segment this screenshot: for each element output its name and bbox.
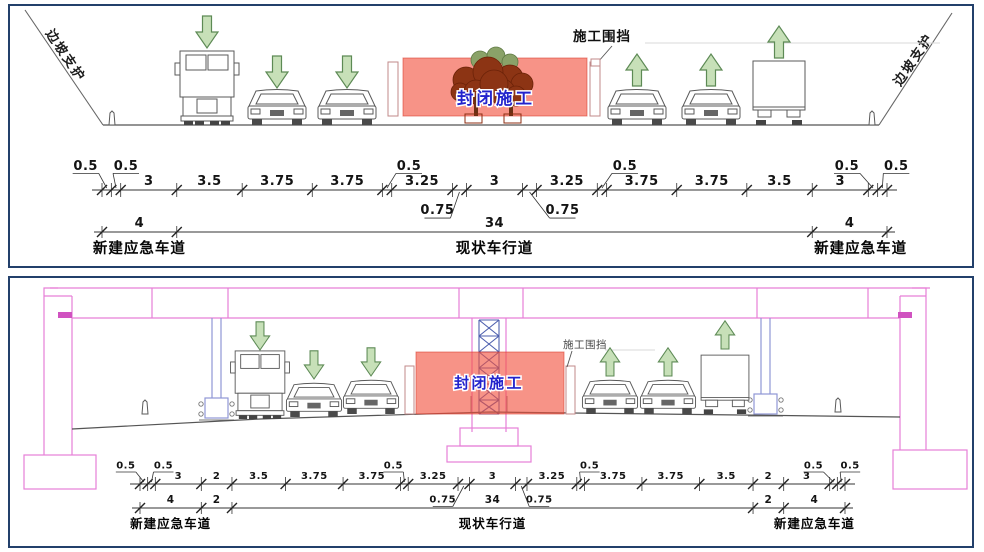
dim-label: 3.5 [717, 471, 736, 482]
fence-callout-label: 施工围挡 [563, 338, 607, 351]
bottom-cross-section-panel: 封闭施工 施工围挡 0.50.5323.53.753.750.53.250.75… [8, 276, 974, 548]
slope-support-label-left: 边坡支护 [41, 26, 88, 86]
construction-fence-panel [590, 62, 600, 116]
dim-callout-label: 0.5 [154, 461, 173, 472]
green-down-arrow-icon [266, 56, 288, 88]
closed-construction-label: 封闭施工 [454, 374, 524, 392]
lane-label: 新建应急车道 [93, 239, 186, 257]
dim-label: 3.75 [695, 174, 729, 189]
dim-callout-label: 0.75 [420, 203, 454, 218]
dim-callout-label: 0.5 [580, 461, 599, 472]
delineator-post-icon [869, 111, 875, 125]
dim-total-label: 2 [764, 494, 772, 506]
dim-callout-label: 0.5 [884, 159, 909, 174]
fence-callout-target [591, 59, 600, 66]
closed-construction-label: 封闭施工 [457, 88, 535, 108]
delineator-post-icon [835, 398, 841, 412]
dim-callout-label: 0.5 [397, 159, 422, 174]
dim-label: 3.5 [197, 174, 222, 189]
dim-total-label: 4 [167, 494, 175, 506]
dim-label: 3.75 [260, 174, 294, 189]
green-up-arrow-icon [658, 348, 677, 376]
green-down-arrow-icon [250, 322, 269, 350]
dim-callout-label: 0.5 [384, 461, 403, 472]
dim-label: 3.25 [550, 174, 584, 189]
dim-label: 3 [489, 471, 496, 482]
dim-label: 3 [144, 174, 154, 189]
construction-cross-section-figure: 边坡支护 边坡支护 封闭施工 施工围挡 0.50.533.53.753.750.… [0, 0, 984, 552]
dim-callout-label: 0.5 [114, 159, 139, 174]
deck-joint-lines [152, 288, 868, 318]
green-down-arrow-icon [361, 348, 380, 376]
dim-label: 3.75 [657, 471, 684, 482]
left-pier [199, 318, 234, 420]
lane-label: 现状车行道 [459, 516, 527, 531]
car-front-icon [682, 90, 740, 126]
lane-label: 新建应急车道 [130, 516, 211, 531]
truck-rear-icon [753, 61, 805, 125]
car-front-icon [582, 380, 637, 414]
green-up-arrow-icon [600, 348, 619, 376]
car-front-icon [248, 90, 306, 126]
dim-label: 3.25 [420, 471, 447, 482]
dim-label: 3.75 [625, 174, 659, 189]
green-up-arrow-icon [626, 54, 648, 86]
construction-fence-panel [388, 62, 398, 116]
dim-callout-label: 0.75 [526, 495, 553, 506]
car-front-icon [608, 90, 666, 126]
car-front-icon [286, 383, 341, 417]
construction-fence-panel [566, 366, 575, 414]
green-down-arrow-icon [304, 351, 323, 379]
dim-callout-label: 0.75 [429, 495, 456, 506]
dim-callout-label: 0.5 [841, 461, 860, 472]
dim-label: 3.25 [405, 174, 439, 189]
right-abutment [893, 288, 967, 489]
lane-label: 现状车行道 [456, 239, 534, 257]
dim-total-label: 4 [845, 216, 855, 231]
dim-callout-label: 0.75 [546, 203, 580, 218]
dim-label: 3 [175, 471, 182, 482]
truck-front-icon [231, 351, 290, 419]
dim-label: 3.75 [301, 471, 328, 482]
lane-label: 新建应急车道 [774, 516, 855, 531]
dim-callout-label: 0.5 [73, 159, 98, 174]
bottom-dimension-lines: 0.50.5323.53.753.750.53.250.7530.753.250… [116, 461, 860, 532]
dim-callout-label: 0.5 [116, 461, 135, 472]
construction-fence-panel [405, 366, 414, 414]
top-cross-section-panel: 边坡支护 边坡支护 封闭施工 施工围挡 0.50.533.53.753.750.… [8, 4, 974, 268]
slope-support-label-right: 边坡支护 [890, 30, 937, 90]
car-front-icon [318, 90, 376, 126]
dim-total-label: 4 [135, 216, 145, 231]
green-down-arrow-icon [336, 56, 358, 88]
dim-callout-label: 0.5 [804, 461, 823, 472]
right-pier [748, 318, 783, 416]
truck-front-icon [175, 51, 239, 125]
dim-label: 3 [803, 471, 810, 482]
dim-label: 3 [836, 174, 846, 189]
dim-label: 3 [490, 174, 500, 189]
top-dimension-lines: 0.50.533.53.753.750.53.250.7530.753.250.… [73, 159, 910, 257]
dim-total-label: 34 [485, 216, 504, 231]
dim-callout-label: 0.5 [835, 159, 860, 174]
dim-total-label: 4 [810, 494, 818, 506]
dim-total-label: 2 [213, 494, 221, 506]
car-front-icon [343, 380, 398, 414]
dim-label: 2 [765, 471, 772, 482]
green-up-arrow-icon [700, 54, 722, 86]
car-front-icon [640, 380, 695, 414]
green-up-arrow-icon [768, 26, 790, 58]
dim-label: 3.75 [330, 174, 364, 189]
truck-rear-icon [701, 355, 749, 414]
green-up-arrow-icon [715, 321, 734, 349]
dim-label: 3.5 [767, 174, 792, 189]
dim-label: 3.75 [358, 471, 385, 482]
dim-callout-label: 0.5 [613, 159, 638, 174]
green-down-arrow-icon [196, 16, 218, 48]
dim-total-label: 34 [485, 494, 501, 506]
dim-label: 3.75 [600, 471, 627, 482]
lane-label: 新建应急车道 [814, 239, 907, 257]
dim-label: 2 [213, 471, 220, 482]
delineator-post-icon [109, 111, 115, 125]
dim-label: 3.5 [249, 471, 268, 482]
fence-callout-leader [567, 351, 572, 367]
fence-callout-label: 施工围挡 [573, 28, 631, 45]
delineator-post-icon [142, 400, 148, 414]
dim-label: 3.25 [539, 471, 566, 482]
